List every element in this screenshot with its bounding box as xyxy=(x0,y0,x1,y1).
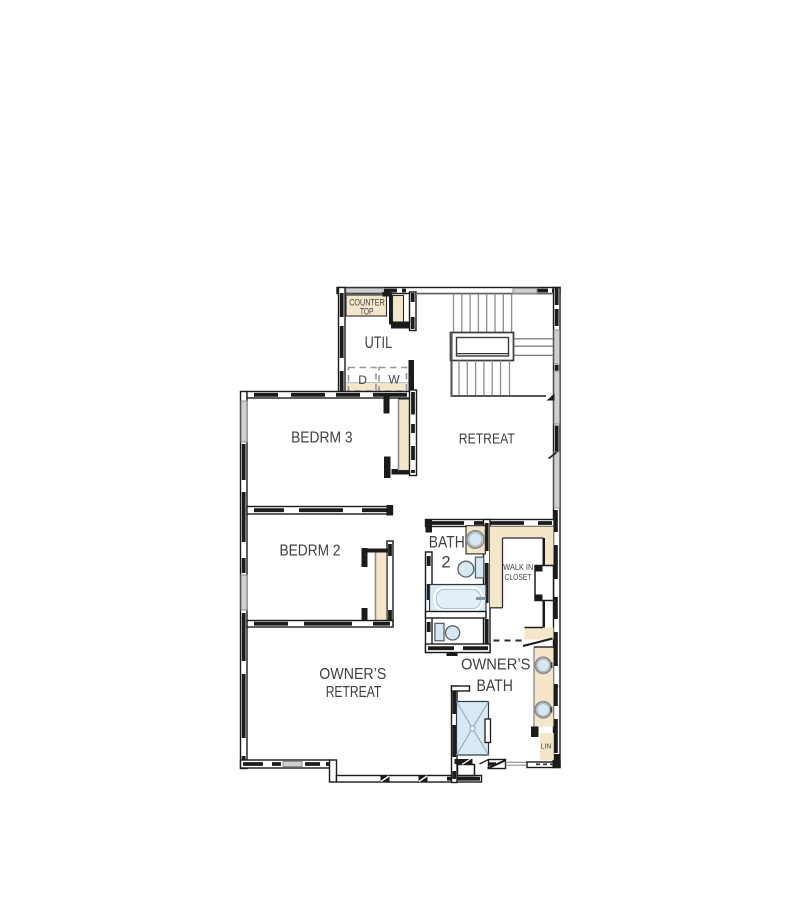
svg-text:LIN: LIN xyxy=(541,742,552,751)
svg-text:UTIL: UTIL xyxy=(365,333,393,352)
svg-text:2: 2 xyxy=(441,554,450,572)
svg-text:D: D xyxy=(358,373,367,387)
svg-text:OWNER’S: OWNER’S xyxy=(461,657,531,674)
svg-text:BATH: BATH xyxy=(429,534,465,552)
svg-text:BEDRM 3: BEDRM 3 xyxy=(291,430,352,447)
svg-text:W: W xyxy=(388,373,400,387)
svg-text:TOP: TOP xyxy=(360,306,374,316)
svg-text:BATH: BATH xyxy=(476,677,513,695)
svg-text:RETREAT: RETREAT xyxy=(326,684,382,701)
svg-text:CLOSET: CLOSET xyxy=(505,572,532,582)
svg-text:WALK IN: WALK IN xyxy=(503,562,533,572)
svg-text:RETREAT: RETREAT xyxy=(459,431,515,447)
svg-text:BEDRM 2: BEDRM 2 xyxy=(280,543,341,560)
svg-text:OWNER’S: OWNER’S xyxy=(319,666,386,683)
